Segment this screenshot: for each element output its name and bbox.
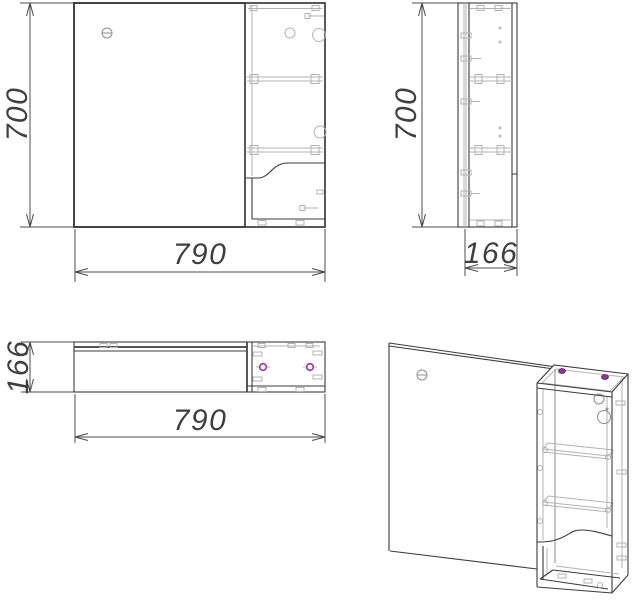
screw-hole-icon — [260, 364, 267, 371]
side-depth-label: 166 — [464, 237, 519, 270]
side-height-dimension: 700 — [390, 3, 426, 227]
top-view: 166 790 — [2, 340, 325, 443]
side-view: 700 — [390, 3, 518, 276]
side-height-label: 700 — [390, 87, 423, 142]
cabinet-side-outline — [458, 3, 517, 227]
front-height-label: 700 — [1, 87, 34, 142]
cabinet-3d — [537, 365, 628, 593]
side-depth-dimension: 166 — [464, 229, 519, 276]
top-width-label: 790 — [173, 404, 228, 437]
cabinet-front-outline — [74, 3, 325, 227]
drawing-page: 700 — [0, 0, 633, 600]
cabinet-top-outline — [74, 342, 325, 392]
mirror-panel-3d — [389, 343, 556, 569]
screw-hole-icon — [602, 375, 609, 380]
top-width-dimension: 790 — [75, 394, 325, 443]
drawing-canvas: 700 — [0, 0, 633, 600]
screw-hole-icon — [559, 369, 566, 374]
top-depth-label: 166 — [2, 340, 35, 395]
front-width-label: 790 — [173, 238, 228, 271]
front-view: 700 — [1, 3, 326, 282]
isometric-view — [389, 343, 628, 593]
screw-hole-icon — [307, 364, 314, 371]
front-height-dimension: 700 — [1, 3, 34, 227]
front-width-dimension: 790 — [75, 229, 325, 282]
top-depth-dimension: 166 — [2, 340, 35, 395]
